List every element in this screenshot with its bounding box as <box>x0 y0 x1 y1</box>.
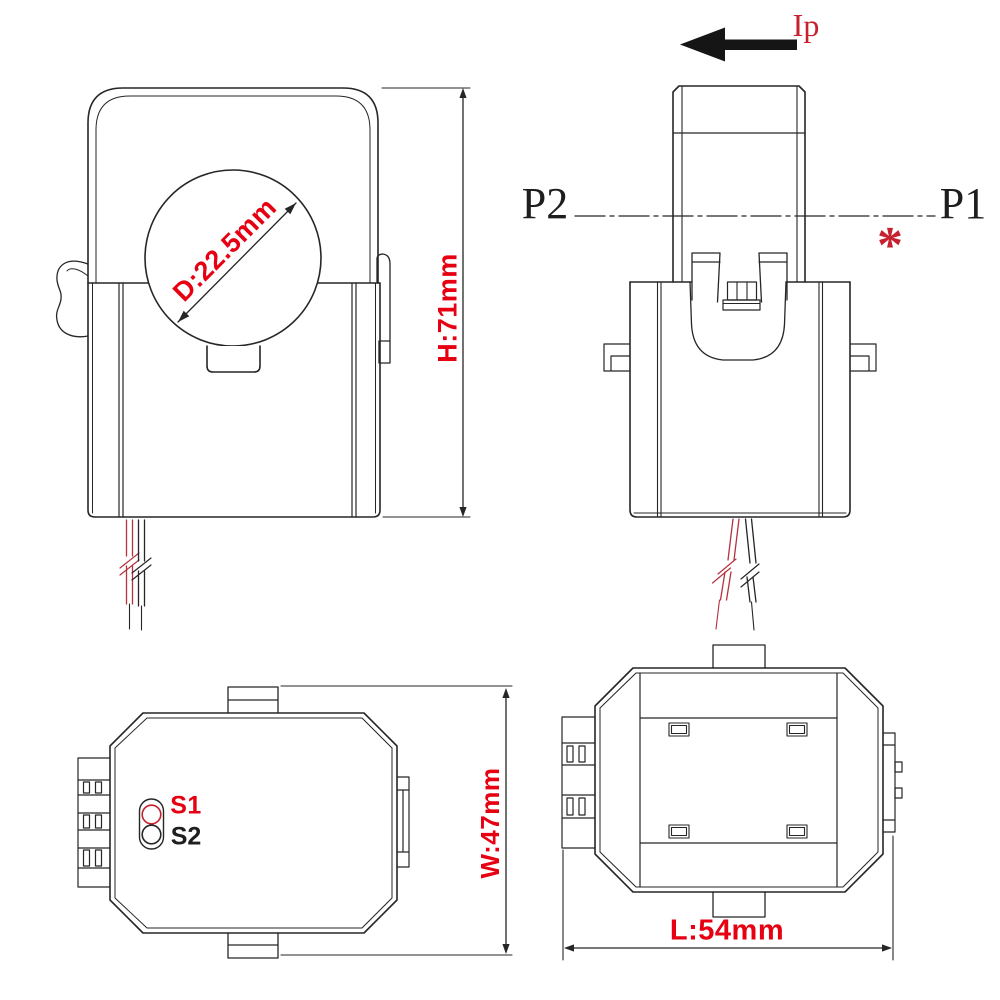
current-direction-arrow-icon <box>680 28 797 62</box>
terminal-s1-label: S1 <box>170 794 202 819</box>
left-connector-teeth <box>78 758 110 887</box>
side-secondary-wires <box>713 519 760 630</box>
s1-s2-terminals <box>140 799 164 849</box>
bottom-view-drawing <box>78 687 409 958</box>
front-view-drawing <box>57 88 390 630</box>
side-view-drawing <box>575 28 935 631</box>
terminal-s2-label: S2 <box>171 825 202 850</box>
length-dimension-label: L:54mm <box>670 917 784 946</box>
s1-terminal-circle <box>142 805 161 824</box>
top-view-drawing <box>562 645 902 917</box>
right-bracket-top <box>883 733 902 832</box>
right-bracket <box>397 777 409 867</box>
left-connector-teeth-top <box>562 717 595 848</box>
ct-dimensional-drawing: Ip P2 P1 * D:22.5mm H:71mm W:47mm L:54mm… <box>0 0 1000 1000</box>
terminal-p1-label: P1 <box>940 182 986 226</box>
terminal-p2-label: P2 <box>522 182 568 226</box>
primary-current-label: Ip <box>793 9 820 41</box>
clip-slots <box>669 723 807 838</box>
s2-terminal-circle <box>142 825 161 844</box>
height-dimension-label: H:71mm <box>435 253 462 363</box>
width-dimension-label: W:47mm <box>477 768 503 879</box>
front-secondary-wires <box>120 520 151 630</box>
note-asterisk: * <box>877 220 903 272</box>
